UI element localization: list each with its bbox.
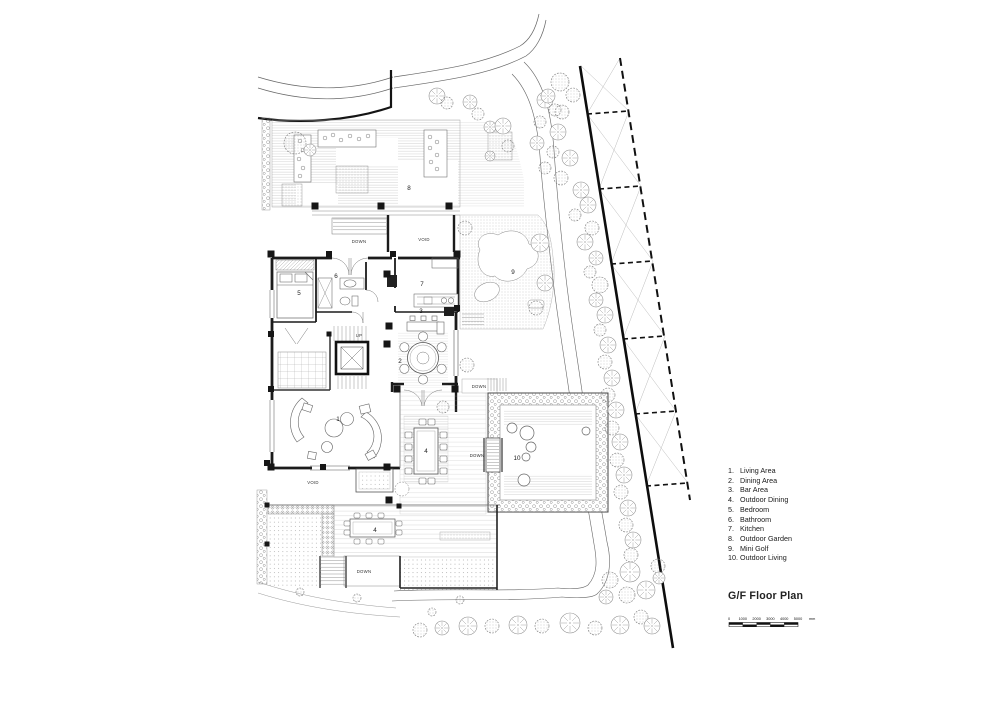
room-number-bar: 3 [419,308,423,315]
legend-item-label: Outdoor Garden [740,534,792,543]
entry-porch [312,211,460,252]
legend-item-number: 3. [728,485,740,495]
legend-item: 8.Outdoor Garden [728,534,792,544]
room-number-outdoor-living: 10 [513,455,521,462]
room-number-garden: 8 [407,185,411,192]
site-edge [258,70,391,121]
legend-item: 4.Outdoor Dining [728,495,792,505]
outdoor-garden-area [272,120,524,207]
label-down-porch: DOWN [352,239,367,244]
scale-tick: 5000 [794,617,802,621]
ground-contours [258,582,400,617]
legend-item-number: 1. [728,466,740,476]
legend-item-label: Dining Area [740,476,777,485]
legend-item-number: 6. [728,515,740,525]
floor-plan-drawing: DOWN VOID UP DOWN DOWN VOID DOWN 1 2 3 4… [0,0,1000,707]
planting-strip-upper-left [262,118,270,210]
drawing-title: G/F Floor Plan [728,590,803,602]
legend-item-number: 4. [728,495,740,505]
legend-item-label: Mini Golf [740,544,768,553]
legend-item-label: Outdoor Living [740,553,787,562]
legend-item-number: 10. [728,553,740,563]
label-down-bridge: DOWN [470,453,485,458]
floor-plan-sheet: DOWN VOID UP DOWN DOWN VOID DOWN 1 2 3 4… [0,0,1000,707]
legend-item: 1.Living Area [728,466,792,476]
living-area [290,398,381,460]
room-number-living: 1 [336,416,340,423]
scale-tick: 1000 [739,617,747,621]
legend-item-label: Bar Area [740,485,768,494]
scale-tick: 0 [728,617,730,621]
legend-item-label: Bathroom [740,515,771,524]
legend-item: 5.Bedroom [728,505,792,515]
room-number-minigolf: 9 [511,269,515,276]
legend-item: 9.Mini Golf [728,544,792,554]
dashed-lot-line [620,58,690,500]
legend-item: 6.Bathroom [728,515,792,525]
bar-area [407,307,454,334]
scale-tick: 3000 [766,617,774,621]
scale-bar: 0 1000 2000 3000 4000 5000 mm [727,612,823,636]
outdoor-living-area [484,393,608,512]
dining-area [398,332,448,388]
bedroom [276,260,314,318]
legend-item-label: Bedroom [740,505,769,514]
room-number-kitchen: 7 [420,281,424,288]
legend-item-number: 2. [728,476,740,486]
label-up-stairs: UP [356,333,362,338]
legend-item-label: Outdoor Dining [740,495,788,504]
legend: 1.Living Area 2.Dining Area 3.Bar Area 4… [728,466,792,563]
label-void-lower: VOID [307,480,319,485]
legend-item-label: Living Area [740,466,776,475]
legend-item-label: Kitchen [740,524,764,533]
legend-item: 2.Dining Area [728,476,792,486]
room-number-bedroom: 5 [297,290,301,297]
scale-tick: 4000 [780,617,788,621]
bathroom [318,278,364,308]
scale-bar-segments [729,623,798,627]
room-number-outdoor-dining: 4 [424,448,428,455]
room-number-bathroom: 6 [334,273,338,280]
room-number-dining: 2 [398,358,402,365]
room-number-outdoor-dining-2: 4 [373,527,377,534]
stairs-elevator [278,326,368,389]
legend-item-number: 9. [728,544,740,554]
legend-item-number: 8. [728,534,740,544]
scale-bar-ticks: 0 1000 2000 3000 4000 5000 mm [728,617,815,621]
scale-unit: mm [809,617,815,621]
legend-item: 7.Kitchen [728,524,792,534]
scale-tick: 2000 [752,617,760,621]
label-down-deck: DOWN [472,384,487,389]
label-down-steps: DOWN [357,569,372,574]
label-void-porch: VOID [418,237,430,242]
legend-item: 3.Bar Area [728,485,792,495]
legend-item: 10.Outdoor Living [728,553,792,563]
legend-item-number: 5. [728,505,740,515]
legend-item-number: 7. [728,524,740,534]
